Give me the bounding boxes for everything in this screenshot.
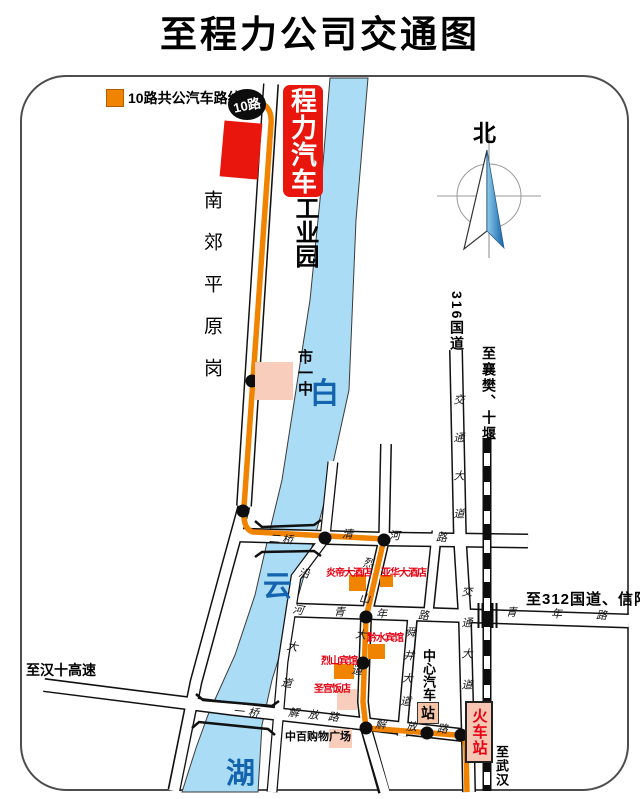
bus-route-10-badge-label: 10路 (232, 92, 263, 116)
bus-route-10-badge: 10路 (228, 89, 266, 120)
legend-route-swatch (106, 89, 124, 107)
qianshui-hotel-label: 黔水宾馆 (367, 629, 403, 644)
river-name-hu: 湖 (226, 750, 255, 792)
qianshui-hotel-building (368, 644, 385, 659)
road-yiqiao-label: 一桥 (232, 702, 264, 721)
train-station-label: 火车站 (469, 708, 490, 756)
chengli-factory-building (220, 120, 263, 179)
river-name-yun: 云 (263, 563, 292, 605)
zhongbai-plaza-label: 中百购物广场 (285, 728, 351, 744)
road-g316-label: 316国道 (447, 291, 467, 352)
yahua-hotel-label: 亚华大酒店 (381, 564, 426, 579)
road-jiaotong-lower-label: 交通大道 (458, 586, 474, 710)
direction-hanshi-label: 至汉十高速 (26, 660, 96, 680)
compass-icon (437, 134, 541, 258)
central-bus-station-label: 中心汽车 (419, 649, 438, 701)
direction-xiangfan-label: 至襄樊、十堰 (479, 346, 499, 442)
compass-north-label: 北 (473, 114, 496, 148)
chengli-sign: 程力汽车 (283, 85, 323, 197)
school-label: 市一中 (294, 349, 315, 397)
road-jiaotong-upper-label: 交通大道 (450, 394, 466, 546)
chengli-sign-text: 程力汽车 (285, 87, 322, 195)
chengli-sign-subtext: 工业园 (287, 196, 322, 268)
traffic-map: 至程力公司交通图 (0, 0, 640, 799)
school-building (255, 362, 293, 400)
area-nanjiao-label: 南郊平原岗 (198, 190, 225, 400)
train-station-building: 火车站 (465, 701, 493, 763)
road-erqiao-label: 二桥 (268, 530, 295, 548)
direction-wuhan-label: 至武汉 (492, 745, 511, 787)
